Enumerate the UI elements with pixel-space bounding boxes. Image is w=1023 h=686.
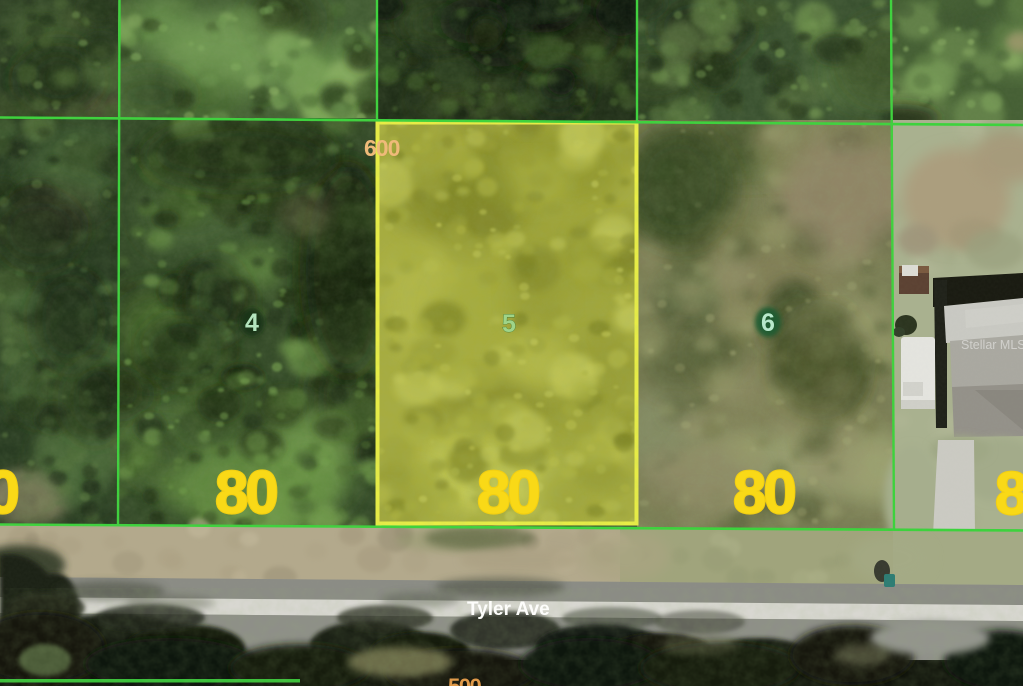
svg-text:4: 4: [245, 309, 259, 337]
svg-text:80: 80: [733, 459, 794, 526]
svg-text:500: 500: [448, 674, 481, 686]
svg-text:80: 80: [0, 459, 17, 526]
svg-text:80: 80: [477, 459, 538, 526]
svg-text:Tyler Ave: Tyler Ave: [467, 599, 550, 620]
svg-text:Stellar MLS: Stellar MLS: [961, 338, 1023, 352]
svg-text:80: 80: [215, 459, 276, 526]
svg-text:6: 6: [761, 309, 775, 337]
svg-text:80: 80: [995, 460, 1023, 527]
svg-text:5: 5: [502, 310, 516, 338]
svg-text:600: 600: [364, 135, 400, 161]
